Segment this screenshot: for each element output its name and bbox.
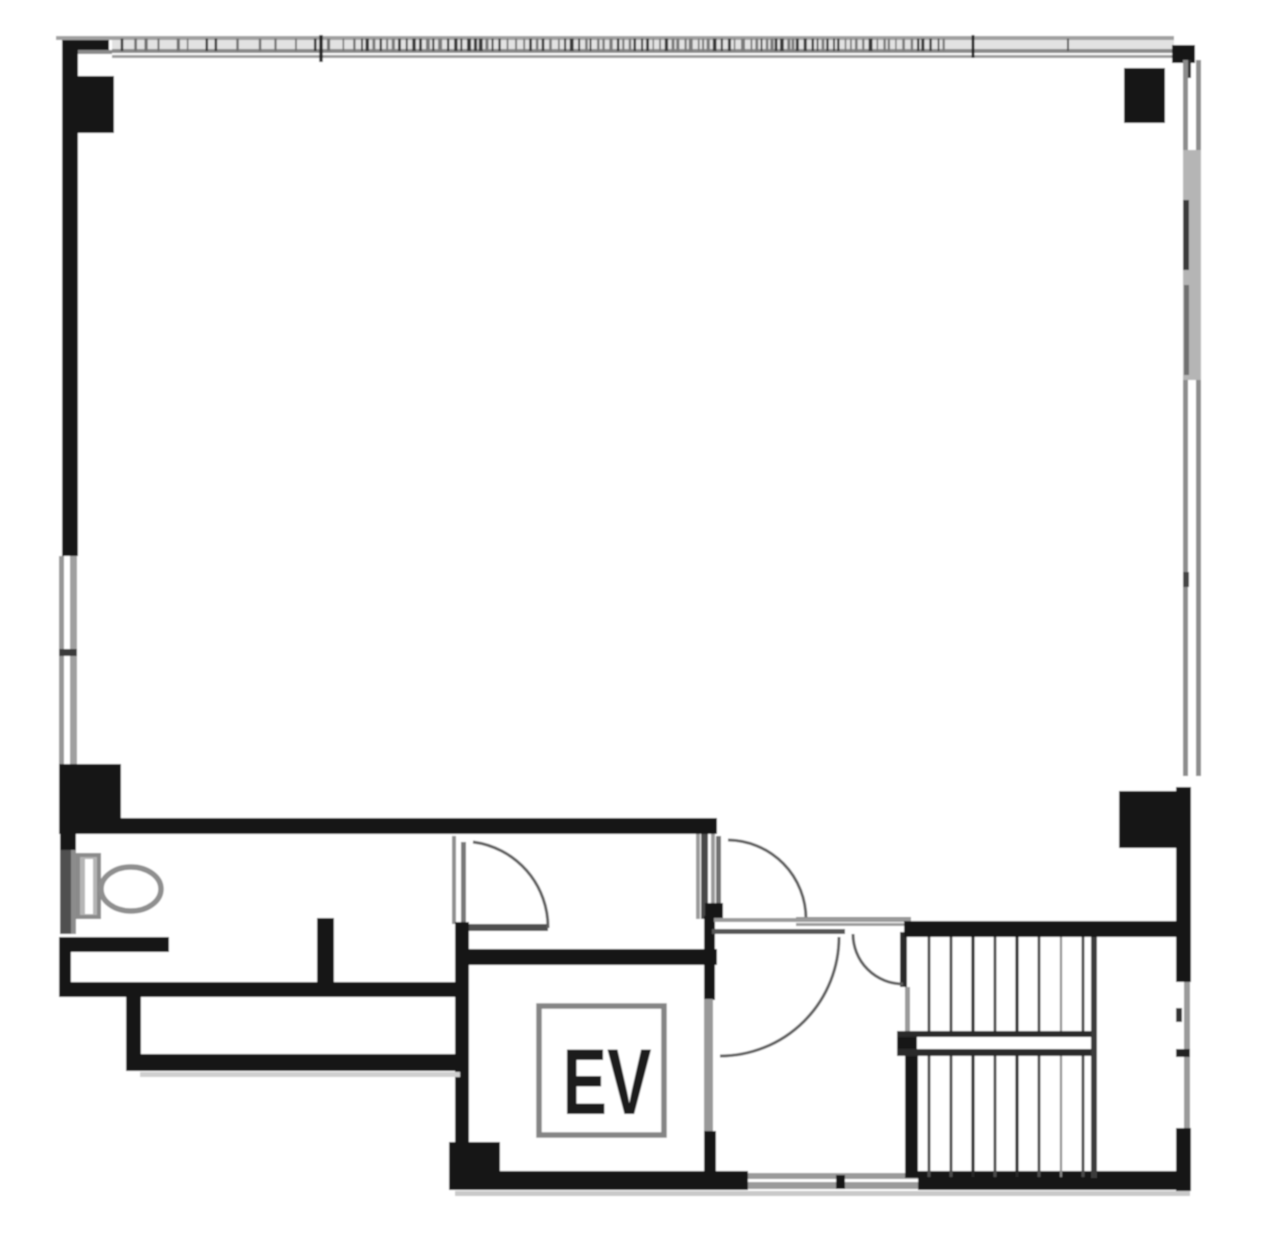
svg-text:EV: EV — [562, 1030, 651, 1135]
